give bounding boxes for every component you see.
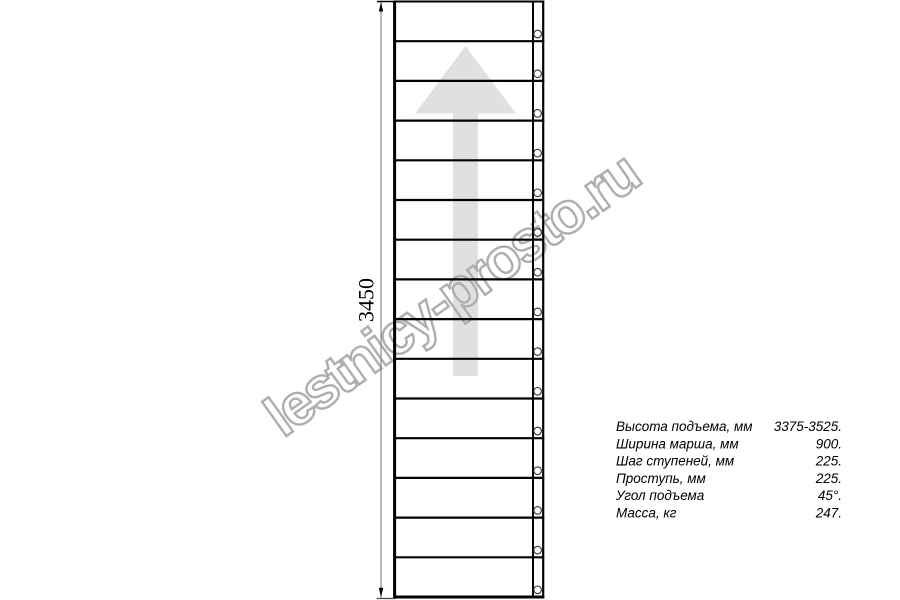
svg-text:900.: 900. <box>816 436 842 451</box>
svg-text:225.: 225. <box>815 454 842 469</box>
svg-text:Шаг ступеней, мм: Шаг ступеней, мм <box>616 454 734 469</box>
svg-text:225.: 225. <box>815 471 842 486</box>
svg-text:Проступь, мм: Проступь, мм <box>616 471 706 486</box>
svg-text:3450: 3450 <box>354 278 379 322</box>
svg-text:Масса, кг: Масса, кг <box>616 506 677 521</box>
svg-text:Ширина марша, мм: Ширина марша, мм <box>616 436 739 451</box>
svg-text:45°.: 45°. <box>818 488 842 503</box>
svg-text:Высота подъема, мм: Высота подъема, мм <box>616 419 752 434</box>
svg-text:Угол подъема: Угол подъема <box>615 488 705 503</box>
svg-text:247.: 247. <box>815 506 842 521</box>
svg-text:3375-3525.: 3375-3525. <box>774 419 842 434</box>
